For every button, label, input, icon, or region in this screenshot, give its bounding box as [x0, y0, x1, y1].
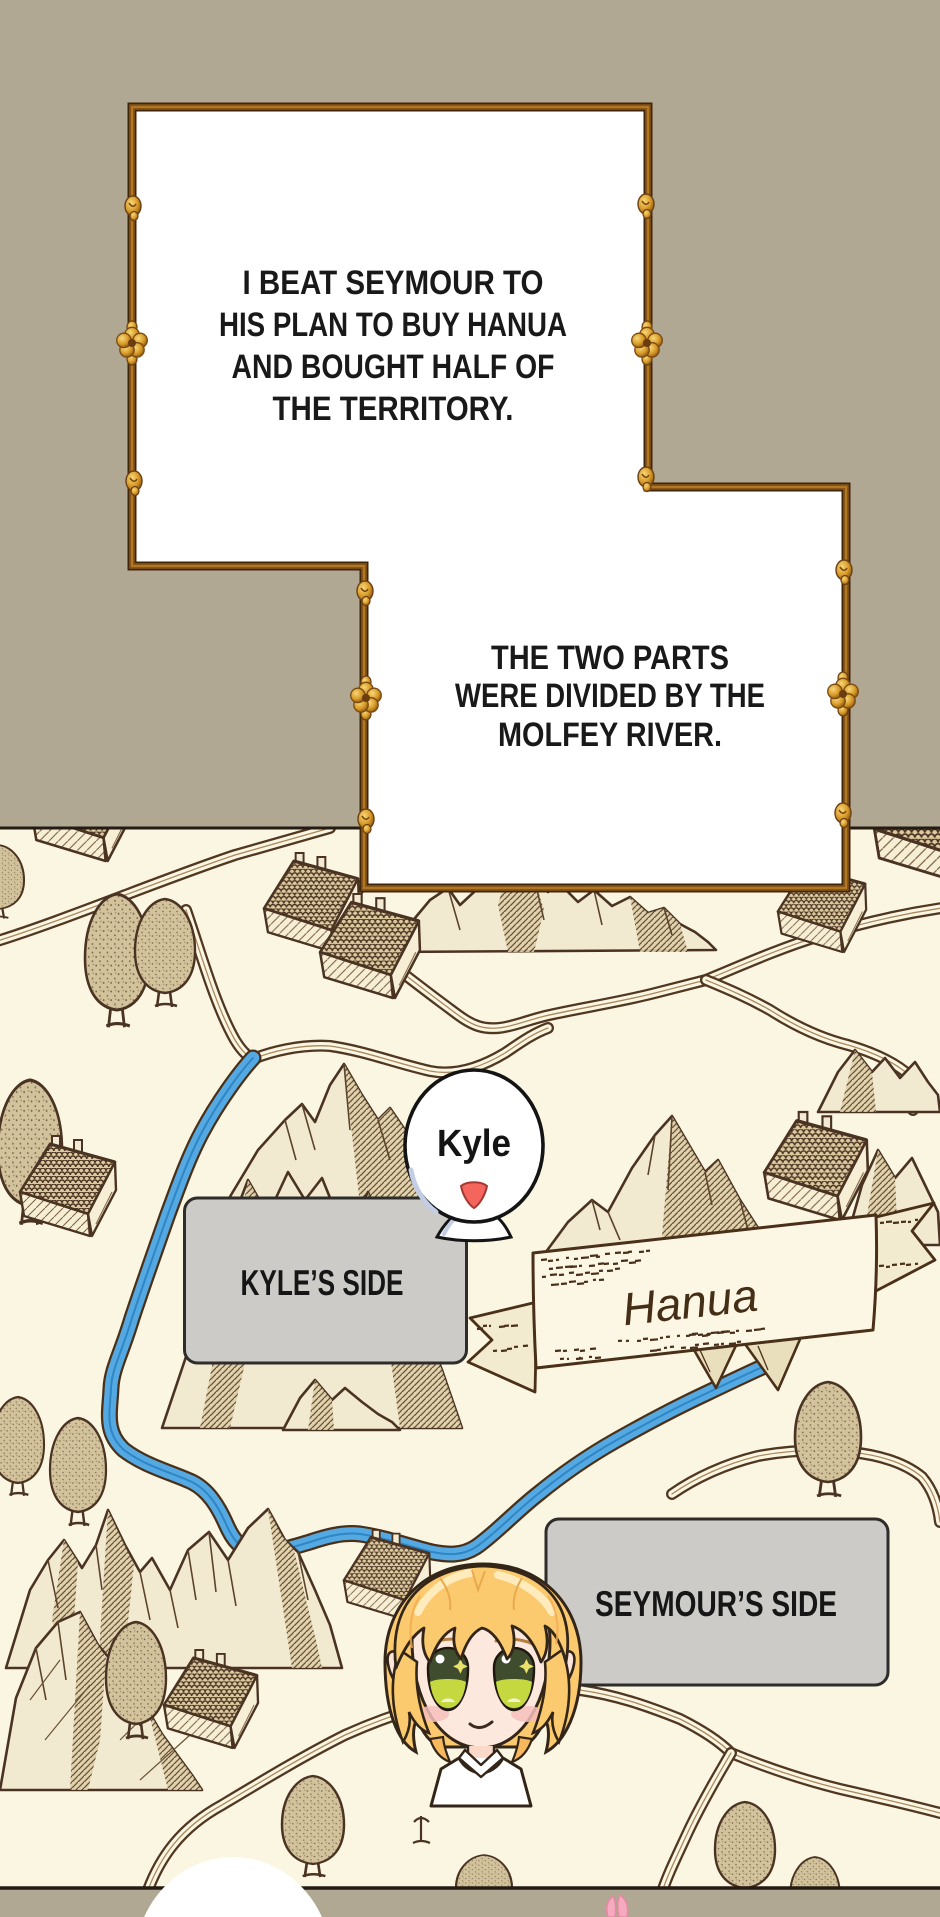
svg-text:HIS PLAN TO BUY HANUA: HIS PLAN TO BUY HANUA [219, 306, 567, 344]
svg-text:WERE DIVIDED BY THE: WERE DIVIDED BY THE [455, 677, 765, 715]
svg-text:I BEAT SEYMOUR TO: I BEAT SEYMOUR TO [243, 264, 544, 302]
svg-text:Kyle: Kyle [437, 1123, 511, 1165]
svg-text:KYLE’S SIDE: KYLE’S SIDE [241, 1262, 404, 1303]
svg-text:THE TERRITORY.: THE TERRITORY. [273, 390, 514, 428]
svg-text:MOLFEY RIVER.: MOLFEY RIVER. [498, 716, 722, 754]
svg-text:SEYMOUR’S SIDE: SEYMOUR’S SIDE [595, 1583, 837, 1624]
svg-text:AND BOUGHT HALF OF: AND BOUGHT HALF OF [232, 348, 555, 386]
svg-text:THE TWO PARTS: THE TWO PARTS [491, 639, 729, 677]
